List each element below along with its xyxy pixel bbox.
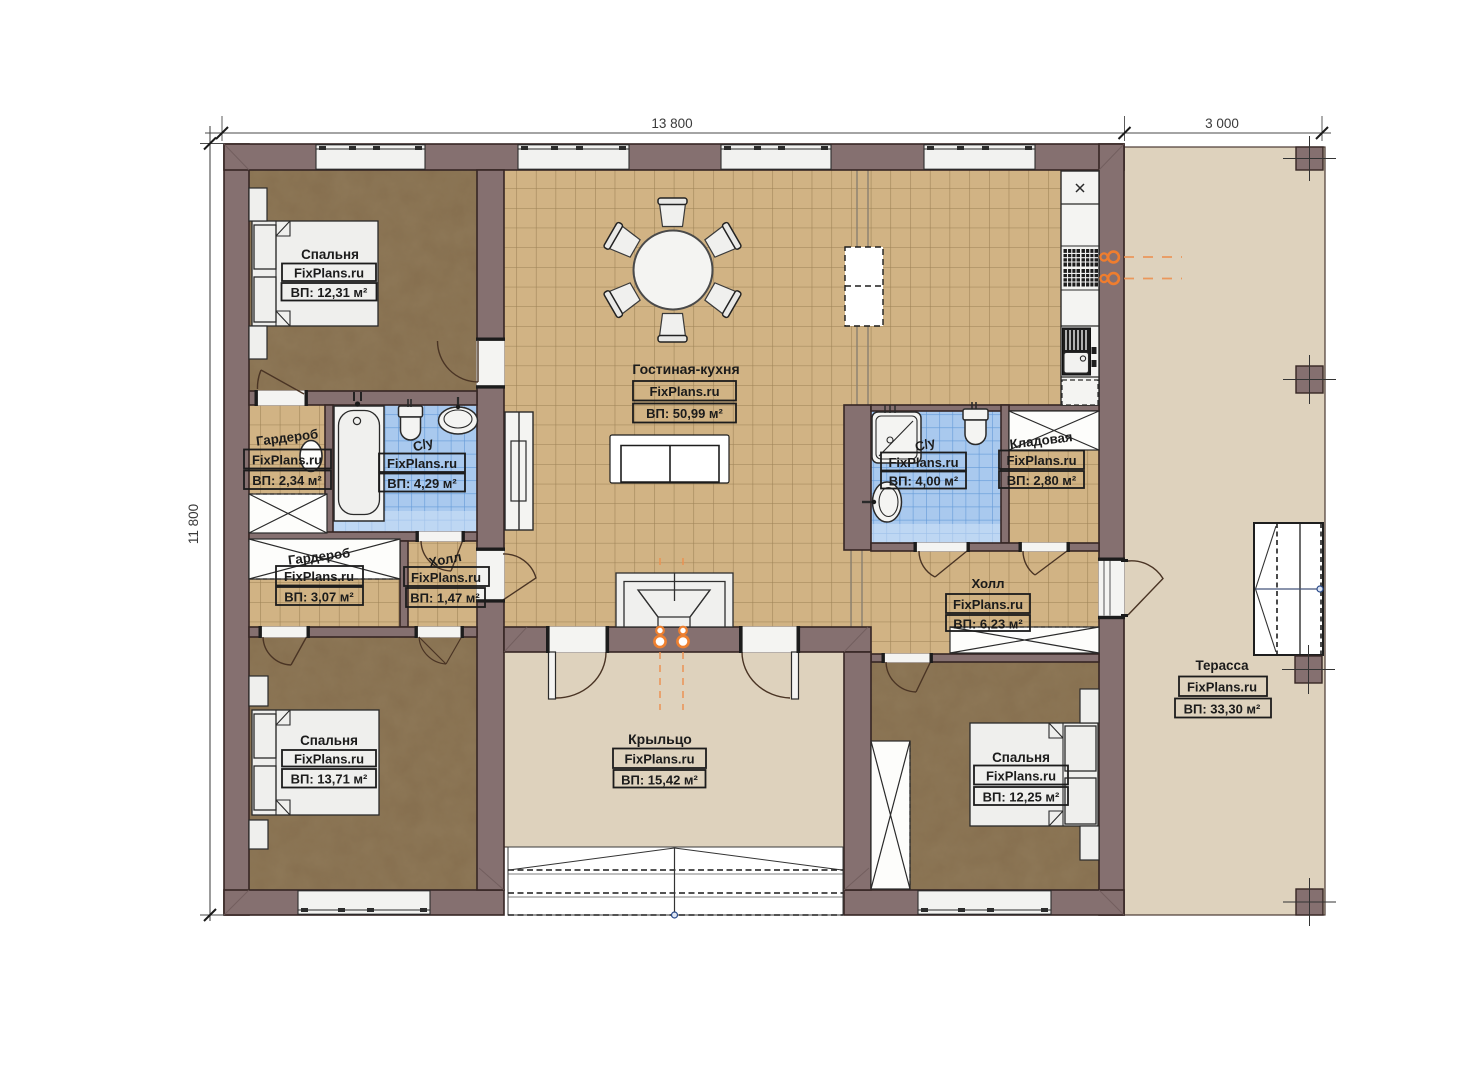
svg-text:ВП: 50,99 м²: ВП: 50,99 м²: [646, 406, 723, 421]
svg-text:Спальня: Спальня: [301, 247, 359, 262]
svg-text:3 000: 3 000: [1205, 116, 1239, 131]
svg-text:FixPlans.ru: FixPlans.ru: [294, 266, 364, 281]
svg-text:FixPlans.ru: FixPlans.ru: [294, 752, 364, 767]
svg-text:FixPlans.ru: FixPlans.ru: [284, 569, 354, 584]
svg-text:ВП: 4,29 м²: ВП: 4,29 м²: [387, 476, 457, 491]
svg-text:Гостиная-кухня: Гостиная-кухня: [632, 361, 739, 377]
svg-text:ВП: 3,07 м²: ВП: 3,07 м²: [284, 590, 354, 605]
svg-text:ВП: 15,42 м²: ВП: 15,42 м²: [621, 773, 698, 788]
svg-text:FixPlans.ru: FixPlans.ru: [649, 384, 719, 399]
svg-text:ВП: 33,30 м²: ВП: 33,30 м²: [1184, 702, 1261, 717]
svg-text:ВП: 6,23 м²: ВП: 6,23 м²: [953, 617, 1023, 632]
svg-text:FixPlans.ru: FixPlans.ru: [387, 456, 457, 471]
svg-text:ВП: 2,34 м²: ВП: 2,34 м²: [252, 473, 322, 488]
svg-text:Холл: Холл: [971, 576, 1004, 591]
svg-text:FixPlans.ru: FixPlans.ru: [953, 597, 1023, 612]
svg-text:FixPlans.ru: FixPlans.ru: [1006, 453, 1076, 468]
svg-text:ВП: 13,71 м²: ВП: 13,71 м²: [291, 772, 368, 787]
svg-text:Спальня: Спальня: [992, 750, 1050, 765]
svg-text:FixPlans.ru: FixPlans.ru: [986, 769, 1056, 784]
svg-text:Крыльцо: Крыльцо: [628, 731, 692, 747]
svg-text:ВП: 1,47 м²: ВП: 1,47 м²: [410, 591, 480, 606]
svg-text:Спальня: Спальня: [300, 733, 358, 748]
svg-text:FixPlans.ru: FixPlans.ru: [411, 570, 481, 585]
svg-text:FixPlans.ru: FixPlans.ru: [624, 752, 694, 767]
svg-text:11 800: 11 800: [186, 504, 201, 544]
svg-text:ВП: 12,25 м²: ВП: 12,25 м²: [983, 790, 1060, 805]
svg-text:FixPlans.ru: FixPlans.ru: [1187, 680, 1257, 695]
svg-text:Терасса: Терасса: [1195, 658, 1249, 673]
svg-text:13 800: 13 800: [651, 116, 692, 131]
svg-text:ВП: 4,00 м²: ВП: 4,00 м²: [889, 474, 959, 489]
svg-text:FixPlans.ru: FixPlans.ru: [252, 453, 322, 468]
svg-text:ВП: 2,80 м²: ВП: 2,80 м²: [1007, 473, 1077, 488]
svg-text:ВП: 12,31 м²: ВП: 12,31 м²: [291, 285, 368, 300]
svg-text:FixPlans.ru: FixPlans.ru: [888, 455, 958, 470]
